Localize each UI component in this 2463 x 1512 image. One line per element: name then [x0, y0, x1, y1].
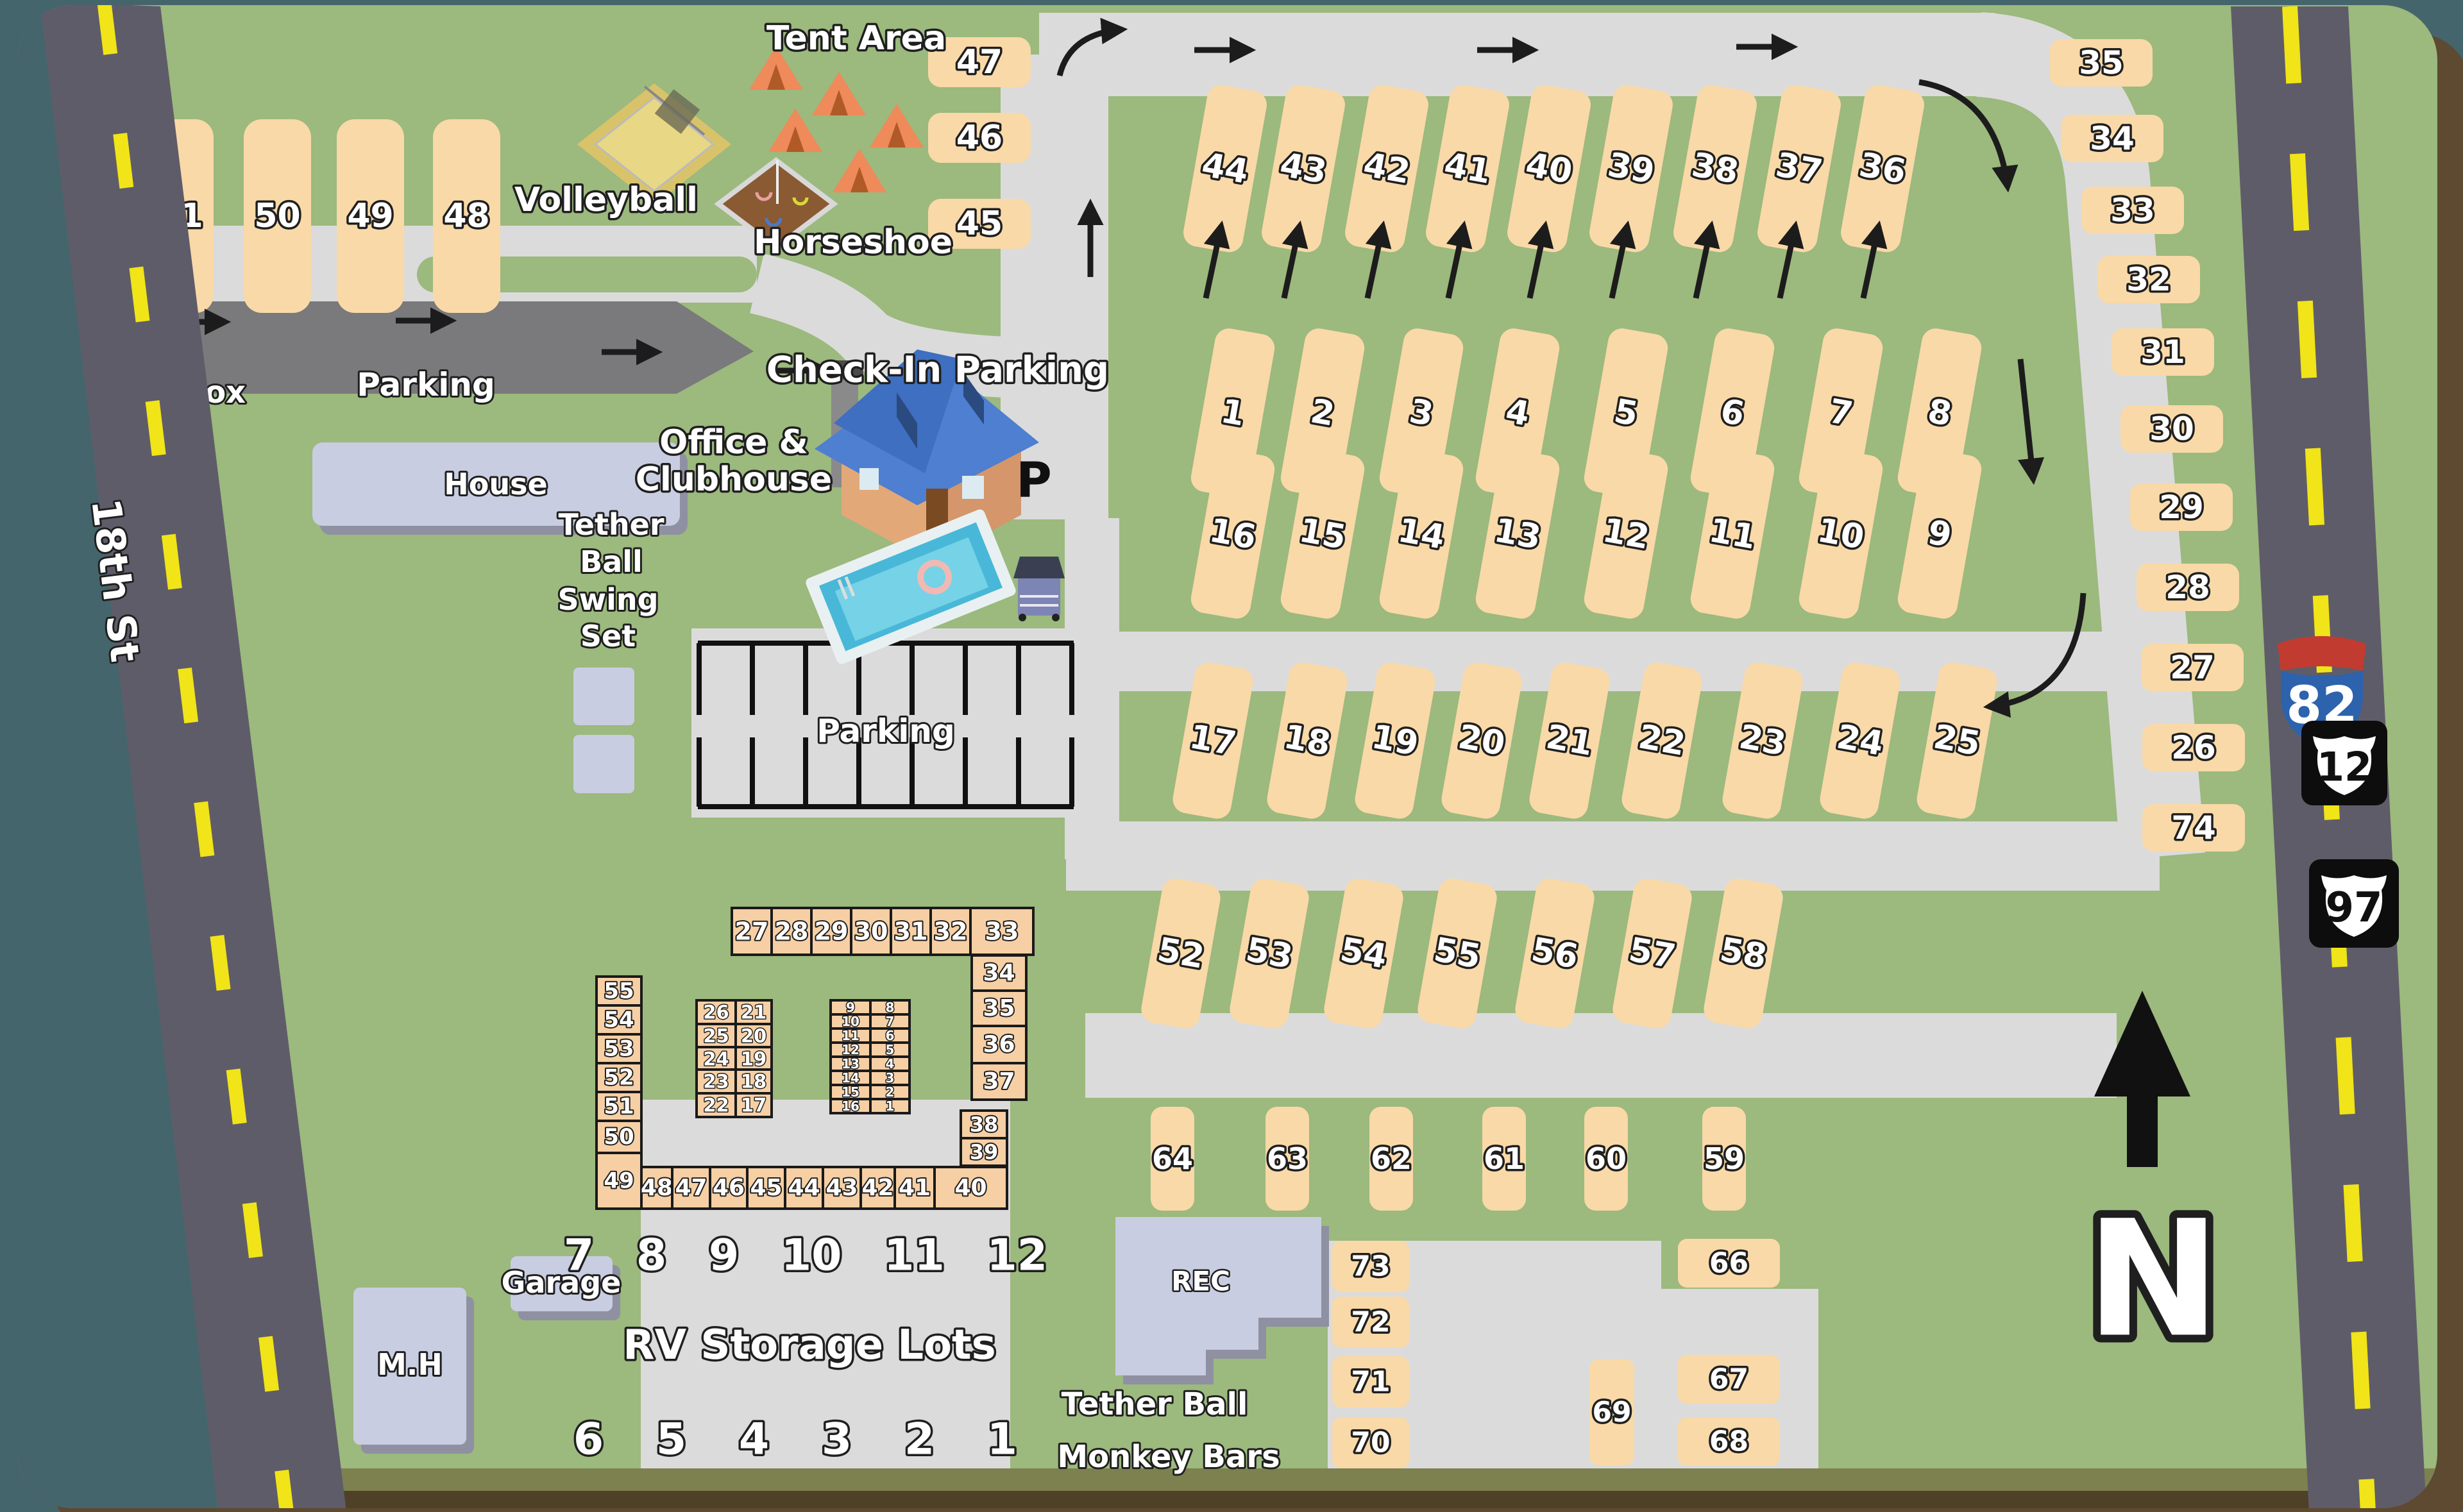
parking-p-label: P [1016, 451, 1052, 508]
site-number: 61 [1484, 1141, 1525, 1176]
site-number: 31 [894, 918, 928, 946]
site-number: 5 [886, 1042, 895, 1057]
map-canvas: 18th St [0, 0, 2463, 1512]
site-13: 13 [831, 1056, 870, 1071]
swing-set-label-line1: Swing [557, 582, 658, 617]
site-33: 33 [2081, 187, 2184, 234]
site-1: 1 [870, 1098, 910, 1114]
site-72: 72 [1332, 1297, 1409, 1348]
site-16: 16 [831, 1098, 870, 1114]
site-number: 66 [1709, 1247, 1748, 1280]
site-number: 55 [604, 979, 634, 1004]
site-number: 13 [842, 1056, 859, 1071]
site-number: 53 [1243, 930, 1296, 977]
site-29: 29 [811, 908, 851, 955]
site-number: 62 [1371, 1141, 1412, 1176]
site-24: 24 [697, 1047, 736, 1071]
site-number: 54 [604, 1007, 634, 1033]
us-12-number: 12 [2317, 744, 2372, 791]
site-29: 29 [2130, 483, 2233, 531]
site-number: 20 [741, 1025, 766, 1047]
site-17: 17 [736, 1093, 772, 1117]
site-number: 45 [956, 205, 1003, 243]
site-number: 53 [604, 1036, 634, 1062]
site-number: 12 [1600, 511, 1652, 557]
site-number: 32 [2126, 261, 2171, 298]
site-35: 35 [972, 991, 1026, 1026]
site-number: 48 [443, 197, 489, 235]
site-61: 61 [1482, 1107, 1526, 1211]
site-number: 28 [2165, 569, 2210, 606]
tent-area-label: Tent Area [766, 19, 946, 58]
site-23: 23 [697, 1070, 736, 1093]
site-6: 6 [870, 1028, 910, 1043]
site-number: 41 [1441, 146, 1494, 192]
site-number: 57 [1626, 930, 1679, 977]
us-97-shield: 97 [2309, 859, 2399, 948]
site-number: 14 [842, 1070, 859, 1086]
site-number: 27 [735, 918, 769, 946]
site-8: 8 [870, 1000, 910, 1015]
site-31: 31 [2112, 328, 2214, 376]
site-number: 14 [1395, 511, 1448, 557]
rv-storage-bottom-numbers: 6 5 4 3 2 1 [573, 1415, 1017, 1465]
site-4: 4 [870, 1056, 910, 1071]
site-number: 40 [954, 1175, 986, 1201]
volleyball-label: Volleyball [514, 181, 698, 219]
site-49: 49 [597, 1153, 641, 1209]
site-number: 21 [1543, 718, 1596, 764]
site-26: 26 [697, 1000, 736, 1024]
swing-set-label-line2: Set [580, 619, 636, 653]
site-number: 47 [675, 1175, 707, 1201]
site-20: 20 [736, 1024, 772, 1048]
site-number: 11 [842, 1028, 859, 1043]
site-44: 44 [785, 1167, 823, 1209]
site-number: 27 [2170, 649, 2215, 686]
site-46: 46 [928, 113, 1031, 163]
site-number: 23 [703, 1071, 729, 1093]
site-64: 64 [1151, 1107, 1194, 1211]
site-number: 22 [1636, 718, 1688, 764]
site-number: 71 [1351, 1366, 1390, 1399]
site-number: 36 [1856, 146, 1909, 192]
site-number: 29 [2159, 489, 2204, 526]
site-number: 19 [741, 1048, 766, 1070]
site-36: 36 [972, 1026, 1026, 1063]
site-14: 14 [831, 1070, 870, 1086]
site-38: 38 [961, 1111, 1007, 1138]
site-70: 70 [1332, 1417, 1409, 1468]
site-number: 44 [788, 1175, 820, 1201]
site-number: 69 [1592, 1396, 1631, 1429]
site-28: 28 [2137, 564, 2239, 611]
site-34: 34 [2061, 115, 2163, 162]
site-number: 52 [604, 1065, 634, 1091]
site-number: 74 [2171, 809, 2216, 846]
site-number: 20 [1455, 718, 1508, 764]
site-18: 18 [736, 1070, 772, 1093]
us-12-shield: 12 [2301, 721, 2387, 805]
site-number: 45 [750, 1175, 782, 1201]
office-label-line2: Clubhouse [636, 460, 832, 499]
check-in-parking-label: Check-In Parking [766, 349, 1109, 391]
site-49: 49 [337, 119, 404, 313]
site-number: 33 [2110, 192, 2155, 229]
site-39: 39 [961, 1138, 1007, 1166]
tether-ball-label-line1: Tether [558, 507, 664, 542]
site-number: 34 [2090, 120, 2135, 157]
site-47: 47 [672, 1167, 710, 1209]
site-27: 27 [732, 908, 772, 955]
site-number: 55 [1431, 930, 1484, 977]
site-37: 37 [972, 1063, 1026, 1100]
site-7: 7 [870, 1014, 910, 1029]
site-21: 21 [736, 1000, 772, 1024]
site-32: 32 [931, 908, 970, 955]
site-number: 48 [641, 1175, 673, 1201]
site-number: 15 [842, 1084, 859, 1100]
site-number: 68 [1709, 1425, 1748, 1458]
site-number: 15 [1296, 511, 1349, 557]
site-number: 6 [886, 1028, 895, 1043]
site-number: 1 [886, 1098, 895, 1114]
site-12: 12 [831, 1042, 870, 1057]
site-number: 46 [956, 119, 1003, 157]
site-50: 50 [244, 119, 311, 313]
site-number: 72 [1351, 1306, 1390, 1339]
site-number: 19 [1369, 718, 1421, 764]
site-51: 51 [597, 1092, 641, 1121]
site-15: 15 [831, 1084, 870, 1100]
site-number: 26 [2171, 729, 2216, 766]
site-number: 44 [1199, 146, 1251, 192]
site-number: 36 [983, 1032, 1015, 1058]
site-35: 35 [2050, 39, 2153, 87]
site-number: 42 [1360, 146, 1413, 192]
site-60: 60 [1584, 1107, 1628, 1211]
site-number: 24 [1834, 718, 1886, 764]
site-number: 31 [2140, 333, 2185, 371]
parking-strip-label: Parking [357, 366, 495, 403]
site-number: 47 [956, 43, 1003, 81]
site-48: 48 [433, 119, 500, 313]
office-label-line1: Office & [659, 423, 808, 462]
site-number: 8 [886, 1000, 895, 1015]
site-73: 73 [1332, 1241, 1409, 1292]
site-42: 42 [861, 1167, 895, 1209]
site-number: 41 [899, 1175, 931, 1201]
site-number: 60 [1586, 1141, 1627, 1176]
site-number: 35 [2079, 44, 2124, 81]
site-number: 37 [983, 1068, 1015, 1095]
site-43: 43 [823, 1167, 861, 1209]
site-19: 19 [736, 1047, 772, 1071]
site-number: 10 [842, 1014, 859, 1029]
site-26: 26 [2142, 724, 2245, 771]
site-number: 58 [1717, 930, 1770, 977]
site-number: 43 [1277, 146, 1330, 192]
site-2: 2 [870, 1084, 910, 1100]
site-46: 46 [710, 1167, 747, 1209]
site-number: 39 [970, 1140, 999, 1164]
rv-storage-title: RV Storage Lots [623, 1322, 995, 1369]
site-68: 68 [1678, 1417, 1780, 1466]
site-59: 59 [1702, 1107, 1746, 1211]
site-number: 52 [1155, 930, 1207, 977]
site-number: 11 [1706, 511, 1759, 557]
site-number: 7 [886, 1014, 895, 1029]
tether-monkey-label-line1: Tether Ball [1062, 1386, 1248, 1422]
site-number: 16 [1206, 511, 1259, 557]
site-number: 9 [846, 1000, 855, 1015]
site-number: 63 [1267, 1141, 1308, 1176]
site-3: 3 [870, 1070, 910, 1086]
bottom-brown-edge [18, 1491, 2437, 1508]
site-number: 56 [1528, 930, 1581, 977]
site-number: 25 [703, 1025, 729, 1047]
site-48: 48 [641, 1167, 673, 1209]
site-number: 50 [604, 1124, 634, 1150]
site-number: 67 [1709, 1363, 1748, 1396]
site-number: 43 [825, 1175, 858, 1201]
tether-monkey-label-line2: Monkey Bars [1057, 1439, 1280, 1475]
site-66: 66 [1678, 1239, 1780, 1288]
site-74: 74 [2142, 804, 2245, 852]
site-number: 70 [1351, 1427, 1390, 1459]
site-33: 33 [970, 908, 1033, 955]
site-number: 29 [815, 918, 849, 946]
site-number: 38 [970, 1113, 999, 1137]
site-number: 73 [1351, 1250, 1390, 1283]
site-54: 54 [597, 1005, 641, 1034]
site-number: 51 [604, 1094, 634, 1120]
site-9: 9 [831, 1000, 870, 1015]
site-number: 49 [347, 197, 393, 235]
site-number: 30 [2149, 410, 2194, 448]
rv-storage-top-numbers: 7 8 9 10 11 12 [564, 1231, 1047, 1281]
site-number: 21 [741, 1002, 766, 1023]
site-27: 27 [2141, 644, 2244, 691]
site-63: 63 [1265, 1107, 1309, 1211]
site-25: 25 [697, 1024, 736, 1048]
site-5: 5 [870, 1042, 910, 1057]
site-number: 32 [934, 918, 968, 946]
site-number: 16 [842, 1098, 859, 1114]
site-number: 46 [713, 1175, 745, 1201]
site-number: 28 [775, 918, 809, 946]
site-31: 31 [891, 908, 931, 955]
site-53: 53 [597, 1034, 641, 1063]
site-41: 41 [895, 1167, 935, 1209]
site-number: 12 [842, 1042, 859, 1057]
site-number: 10 [1815, 511, 1867, 557]
dumpster [1013, 557, 1065, 621]
site-number: 30 [854, 918, 888, 946]
site-number: 64 [1152, 1141, 1193, 1176]
site-45: 45 [747, 1167, 785, 1209]
house-label: House [444, 467, 547, 501]
site-10: 10 [831, 1014, 870, 1029]
site-52: 52 [597, 1063, 641, 1092]
rec-label: REC [1171, 1266, 1230, 1297]
mh-label: M.H [377, 1347, 443, 1382]
site-69: 69 [1589, 1359, 1634, 1465]
site-number: 24 [703, 1048, 729, 1070]
site-number: 3 [886, 1070, 895, 1086]
site-40: 40 [935, 1167, 1007, 1209]
site-number: 59 [1704, 1141, 1745, 1176]
us-97-number: 97 [2325, 884, 2382, 932]
site-number: 54 [1337, 930, 1390, 977]
site-number: 50 [254, 197, 300, 235]
site-number: 23 [1736, 718, 1789, 764]
site-30: 30 [851, 908, 891, 955]
horseshoe-label: Horseshoe [754, 223, 952, 262]
site-number: 40 [1523, 146, 1575, 192]
site-number: 39 [1605, 146, 1657, 192]
site-number: 42 [861, 1175, 893, 1201]
site-number: 26 [703, 1002, 729, 1023]
site-11: 11 [831, 1028, 870, 1043]
site-number: 34 [983, 960, 1015, 986]
site-34: 34 [972, 955, 1026, 991]
site-number: 22 [703, 1095, 729, 1116]
site-22: 22 [697, 1093, 736, 1117]
site-55: 55 [597, 977, 641, 1005]
play-structure-1 [573, 668, 634, 725]
site-number: 49 [604, 1168, 634, 1194]
site-50: 50 [597, 1121, 641, 1153]
parking-lot-label: Parking [817, 712, 954, 750]
site-number: 4 [886, 1056, 895, 1071]
site-number: 38 [1689, 146, 1741, 192]
north-letter: N [2086, 1186, 2220, 1373]
site-number: 18 [741, 1071, 766, 1093]
site-number: 2 [886, 1084, 895, 1100]
site-number: 18 [1281, 718, 1333, 764]
site-28: 28 [772, 908, 811, 955]
site-71: 71 [1332, 1356, 1409, 1407]
site-number: 13 [1491, 511, 1544, 557]
site-number: 17 [1187, 718, 1239, 764]
site-number: 17 [741, 1095, 766, 1116]
site-62: 62 [1369, 1107, 1413, 1211]
site-number: 37 [1773, 146, 1825, 192]
site-number: 35 [983, 995, 1015, 1021]
site-32: 32 [2097, 256, 2200, 303]
play-structure-2 [573, 735, 634, 793]
site-67: 67 [1678, 1355, 1780, 1404]
site-30: 30 [2120, 405, 2223, 453]
campground-map: 18th St [0, 0, 2463, 1512]
site-number: 25 [1931, 718, 1983, 764]
site-number: 33 [985, 918, 1019, 946]
tether-ball-label-line2: Ball [580, 544, 643, 579]
